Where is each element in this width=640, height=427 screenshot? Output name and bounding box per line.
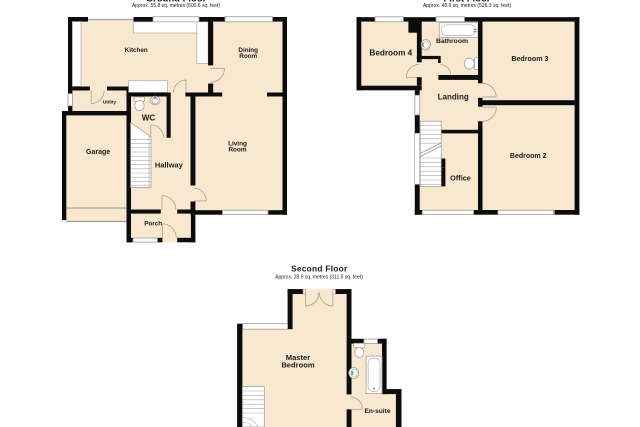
svg-text:Porch: Porch (144, 220, 162, 227)
svg-text:WC: WC (142, 114, 156, 123)
svg-text:En-suite: En-suite (364, 408, 390, 415)
svg-text:Approx. 28.9 sq. metres (311.5: Approx. 28.9 sq. metres (311.5 sq. feet) (275, 275, 363, 281)
svg-text:LivingRoom: LivingRoom (228, 140, 247, 153)
svg-text:Bedroom 4: Bedroom 4 (369, 49, 412, 58)
svg-text:Approx. 48.9 sq. metres (526.3: Approx. 48.9 sq. metres (526.3 sq. feet) (423, 3, 511, 9)
svg-text:Office: Office (450, 173, 471, 182)
svg-text:Landing: Landing (438, 92, 469, 101)
svg-text:Bedroom 3: Bedroom 3 (511, 55, 548, 63)
svg-text:Bedroom 2: Bedroom 2 (510, 153, 547, 160)
svg-text:Second Floor: Second Floor (291, 264, 348, 274)
svg-text:Kitchen: Kitchen (125, 47, 148, 54)
svg-text:Garage: Garage (86, 149, 110, 156)
svg-text:Approx. 55.8 sq. metres (600.6: Approx. 55.8 sq. metres (600.6 sq. feet) (132, 3, 220, 9)
svg-text:DiningRoom: DiningRoom (238, 47, 258, 60)
svg-text:Hallway: Hallway (155, 161, 184, 170)
svg-text:Bathroom: Bathroom (436, 38, 468, 45)
svg-text:Utility: Utility (103, 100, 117, 106)
svg-text:MasterBedroom: MasterBedroom (281, 353, 315, 369)
